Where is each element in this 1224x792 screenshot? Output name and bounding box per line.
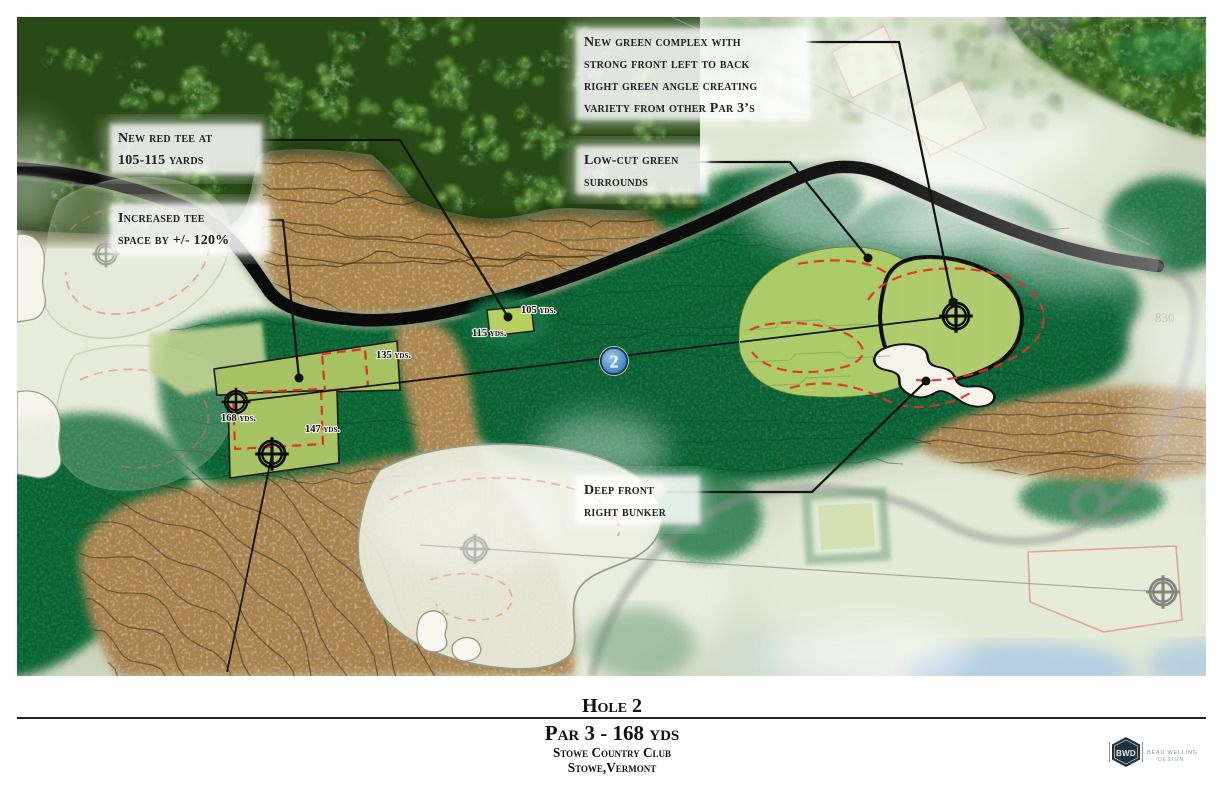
svg-text:strong front left to back: strong front left to back	[584, 57, 750, 72]
svg-text:135 yds.: 135 yds.	[376, 350, 411, 361]
svg-text:115 yds.: 115 yds.	[472, 328, 507, 339]
svg-text:DESIGN: DESIGN	[1158, 757, 1184, 763]
svg-text:Low-cut green: Low-cut green	[584, 153, 679, 168]
svg-text:BWD: BWD	[1116, 749, 1136, 758]
svg-text:Stowe,Vermont: Stowe,Vermont	[568, 760, 657, 775]
svg-text:surrounds: surrounds	[584, 175, 648, 190]
svg-text:New green complex with: New green complex with	[584, 35, 741, 50]
svg-text:Hole 2: Hole 2	[582, 695, 642, 717]
svg-text:Par 3 - 168 yds: Par 3 - 168 yds	[545, 721, 680, 745]
svg-text:space by +/- 120%: space by +/- 120%	[118, 233, 229, 248]
svg-text:168 yds.: 168 yds.	[221, 413, 256, 424]
svg-text:right green angle creating: right green angle creating	[584, 79, 757, 94]
svg-text:820: 820	[205, 484, 225, 499]
svg-text:105-115 yards: 105-115 yards	[118, 153, 204, 168]
svg-text:BEAU WELLING: BEAU WELLING	[1147, 750, 1198, 756]
svg-text:2: 2	[610, 352, 619, 372]
svg-text:New red tee at: New red tee at	[118, 131, 212, 146]
svg-text:Stowe Country Club: Stowe Country Club	[553, 745, 671, 760]
svg-text:Deep front: Deep front	[584, 483, 654, 498]
svg-text:147 yds.: 147 yds.	[305, 424, 340, 435]
svg-text:105 yds.: 105 yds.	[521, 305, 556, 316]
svg-text:Increased tee: Increased tee	[118, 211, 205, 226]
svg-text:variety from other Par 3’s: variety from other Par 3’s	[584, 101, 755, 116]
svg-text:right bunker: right bunker	[584, 505, 667, 520]
